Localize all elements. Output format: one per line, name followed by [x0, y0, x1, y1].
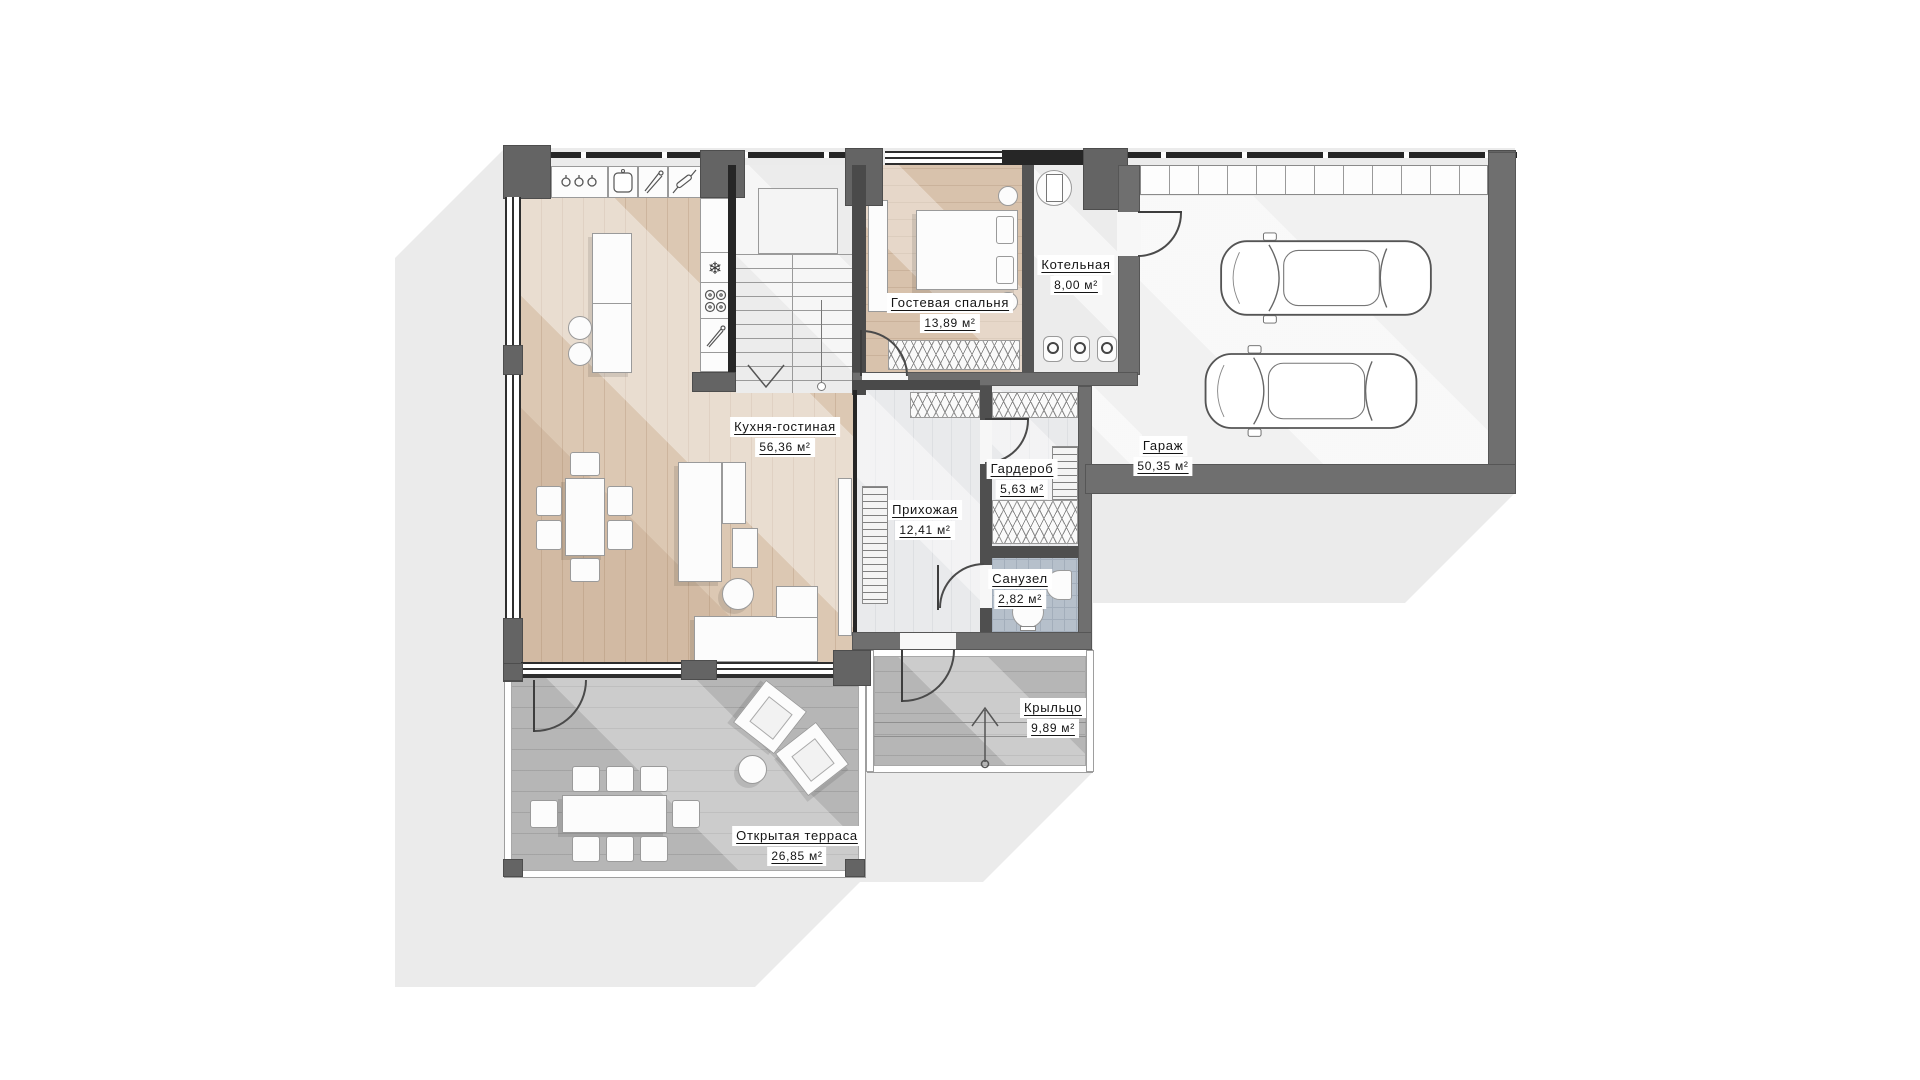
label-wardrobe: Гардероб 5,63 м² [987, 459, 1058, 499]
label-garage: Гараж 50,35 м² [1133, 436, 1192, 476]
terrace-chair [640, 766, 668, 792]
room-area: 13,89 м² [920, 314, 979, 333]
stair-divider [792, 254, 793, 393]
living-window-south [717, 662, 833, 678]
pier [833, 650, 871, 686]
sofa-horizontal [694, 616, 818, 662]
wall-garage-east [1488, 152, 1516, 494]
stair-rail-line [821, 300, 822, 382]
car-icon [1200, 344, 1422, 438]
cabinet-divider [700, 252, 730, 253]
terrace-chair [530, 800, 558, 828]
bedroom-window [885, 151, 1002, 165]
coffee-table [722, 578, 754, 610]
bedroom-wardrobe-cabinet [868, 200, 888, 312]
label-kitchen-living: Кухня-гостиная 56,36 м² [730, 417, 840, 457]
dining-chair [536, 486, 562, 516]
room-area: 26,85 м² [767, 847, 826, 866]
room-area: 50,35 м² [1133, 457, 1192, 476]
hall-radiator [862, 486, 888, 604]
room-area: 5,63 м² [996, 480, 1048, 499]
terrace-chair [640, 836, 668, 862]
terrace-table [562, 795, 667, 833]
kitchen-sink [608, 166, 638, 198]
room-name: Санузел [988, 569, 1052, 589]
vent-fan-icon: ❄ [702, 258, 728, 280]
terrace-side-table [738, 755, 767, 784]
room-name: Открытая терраса [732, 826, 862, 846]
wardrobe-shelf-hatch-top [992, 392, 1078, 418]
nightstand [998, 186, 1018, 206]
room-name: Гараж [1139, 436, 1187, 456]
car-icon [1215, 232, 1437, 324]
wall-top-living [505, 152, 875, 158]
room-name: Гардероб [987, 459, 1058, 479]
room-name: Гостевая спальня [887, 293, 1013, 313]
side-table [732, 528, 758, 568]
terrace-post [503, 859, 523, 877]
bar-stool [568, 316, 592, 340]
wall-east-midblock [1078, 386, 1092, 650]
sofa-chaise [722, 462, 746, 524]
room-area: 56,36 м² [755, 438, 814, 457]
dining-chair [536, 520, 562, 550]
dining-chair [607, 520, 633, 550]
entry-door-opening [900, 633, 956, 649]
label-bathroom: Санузел 2,82 м² [988, 569, 1052, 609]
wall-bedroom-boiler [1022, 165, 1034, 372]
room-name: Кухня-гостиная [730, 417, 840, 437]
room-area: 12,41 м² [895, 521, 954, 540]
label-terrace: Открытая терраса 26,85 м² [732, 826, 862, 866]
kitchen-counter-utensil2 [668, 166, 701, 198]
label-porch: Крыльцо 9,89 м² [1020, 698, 1086, 738]
porch-column-right [1086, 650, 1094, 772]
boiler-unit-dial-icon [1047, 342, 1059, 354]
kitchen-counter-utensil1 [638, 166, 668, 198]
terrace-chair [672, 800, 700, 828]
rolling-pin-icon [669, 167, 700, 197]
label-hallway: Прихожая 12,41 м² [888, 500, 962, 540]
pillow [996, 256, 1014, 284]
stair-direction-arrow-icon [745, 362, 787, 390]
living-window-south [521, 662, 681, 678]
cabinet-divider [700, 352, 730, 353]
label-boiler: Котельная 8,00 м² [1037, 255, 1114, 295]
entry-arrow-icon [965, 698, 1005, 770]
hall-closet-hatch [910, 392, 980, 418]
room-name: Крыльцо [1020, 698, 1086, 718]
living-window-left [505, 375, 521, 618]
wall-top-garage [1085, 152, 1517, 158]
room-area: 2,82 м² [994, 590, 1046, 609]
pier [503, 345, 523, 375]
garage-door [1140, 165, 1488, 195]
stair-rail-post [817, 382, 826, 391]
wall-kitchen-stairs [728, 165, 736, 372]
tongs-icon [639, 167, 667, 197]
wall-top-boiler [1002, 150, 1085, 165]
wardrobe-shelf-hatch-bottom [992, 500, 1078, 544]
terrace-chair [606, 836, 634, 862]
pillow [996, 216, 1014, 244]
label-guest-bedroom: Гостевая спальня 13,89 м² [887, 293, 1013, 333]
sofa-corner [776, 586, 818, 618]
dining-table [565, 478, 605, 556]
living-window-left [505, 197, 521, 345]
tv-console [838, 478, 852, 636]
sofa-vertical [678, 462, 722, 582]
bar-stool [568, 342, 592, 366]
cabinet-divider [700, 282, 730, 283]
pier [692, 372, 736, 392]
terrace-chair [572, 836, 600, 862]
room-area: 8,00 м² [1050, 276, 1102, 295]
room-area: 9,89 м² [1027, 719, 1079, 738]
island-divider [592, 303, 632, 304]
room-name: Котельная [1037, 255, 1114, 275]
wall-hall-south [852, 632, 1092, 650]
wall-hall-top [852, 380, 980, 390]
wall-wardrobe-bath [980, 546, 1092, 558]
pier [503, 145, 551, 199]
dining-chair [570, 558, 600, 582]
burner-knobs-icon [552, 167, 607, 197]
dining-chair [570, 452, 600, 476]
pier [681, 660, 717, 680]
kitchen-counter-knobs [551, 166, 608, 198]
stair-landing [758, 188, 838, 254]
dining-chair [607, 486, 633, 516]
toilet-tank [1020, 626, 1036, 631]
whisk-icon [702, 322, 728, 350]
cooktop-icon [702, 286, 728, 316]
cabinet-divider [700, 318, 730, 319]
bedroom-closet-hatch [888, 340, 1020, 370]
boiler-unit-dial-icon [1101, 342, 1113, 354]
room-name: Прихожая [888, 500, 962, 520]
pier [700, 150, 745, 198]
wall-living-hall [853, 390, 857, 650]
terrace-chair [572, 766, 600, 792]
water-heater-core [1046, 174, 1063, 202]
boiler-unit-dial-icon [1074, 342, 1086, 354]
wall-boiler-garage [1118, 165, 1140, 375]
floor-plan-canvas: ❄ [0, 0, 1920, 1080]
terrace-chair [606, 766, 634, 792]
terrace-post [503, 663, 523, 681]
sink-icon [609, 167, 637, 197]
